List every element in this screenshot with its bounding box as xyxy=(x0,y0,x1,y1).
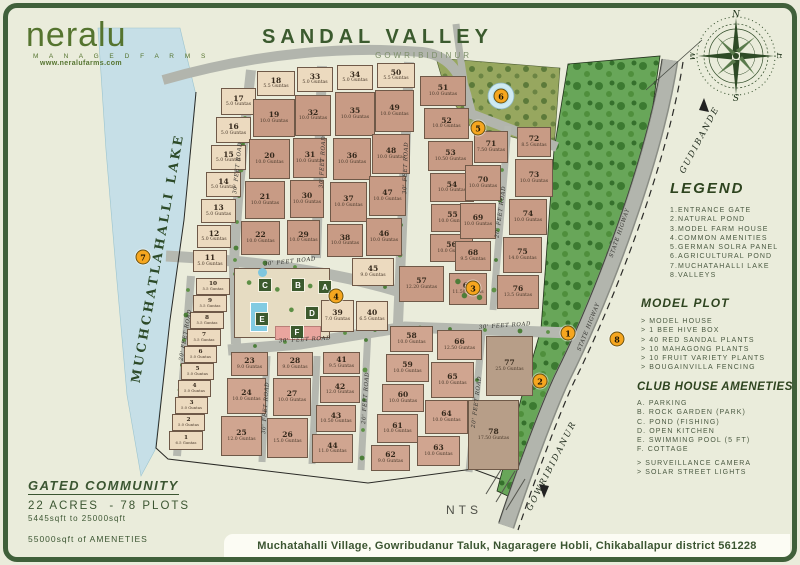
plot-number: 68 xyxy=(468,249,478,257)
plot-size: 10.0 Guntas xyxy=(514,218,542,224)
brand-name: neralu xyxy=(26,18,210,52)
plot-77: 7725.0 Guntas xyxy=(486,336,533,396)
plot-62: 629.0 Guntas xyxy=(371,445,410,471)
plot-size: 5.0 Guntas xyxy=(190,355,211,360)
plot-size: 10.0 Guntas xyxy=(432,124,460,130)
plot-size: 10.0 Guntas xyxy=(255,160,283,166)
project-title: SANDAL VALLEY GOWRIBIDINUR xyxy=(262,26,472,60)
plot-size: 7.0 Guntas xyxy=(325,317,350,323)
plot-size: 5.5 Guntas xyxy=(194,338,215,343)
plot-37: 3710.0 Guntas xyxy=(330,182,367,222)
plot-number: 27 xyxy=(287,390,297,398)
panel-item: > MODEL HOUSE xyxy=(641,317,765,326)
plot-size: 17.50 Guntas xyxy=(478,436,509,442)
plot-number: 74 xyxy=(523,210,533,218)
plot-42: 4212.0 Guntas xyxy=(320,376,360,403)
plot-28: 289.0 Guntas xyxy=(277,352,313,376)
plot-39: 397.0 Guntas xyxy=(321,300,354,332)
plot-size: 6.5 Guntas xyxy=(176,441,197,446)
plot-41: 419.5 Guntas xyxy=(323,352,360,374)
plot-33: 335.0 Guntas xyxy=(297,67,333,92)
plot-number: 70 xyxy=(478,176,488,184)
plot-size: 9.5 Guntas xyxy=(460,257,485,263)
plot-size: 10.0 Guntas xyxy=(432,418,460,424)
plot-24: 2410.0 Guntas xyxy=(227,378,266,414)
plot-number: 71 xyxy=(486,140,496,148)
plot-number: 51 xyxy=(438,84,448,92)
panel-item: 3.MODEL FARM HOUSE xyxy=(670,225,778,234)
plot-29: 2910.0 Guntas xyxy=(287,220,320,255)
plot-26: 2615.0 Guntas xyxy=(267,418,308,458)
plot-number: 69 xyxy=(473,214,483,222)
plot-number: 24 xyxy=(241,389,251,397)
plot-number: 57 xyxy=(416,277,426,285)
legend-marker-5: 5 xyxy=(471,121,486,136)
plot-18: 185.5 Guntas xyxy=(257,71,295,96)
plot-size: 5.0 Guntas xyxy=(206,212,231,218)
plot-number: 26 xyxy=(282,431,292,439)
project-location: GOWRIBIDINUR xyxy=(262,51,472,60)
legend-heading: LEGEND xyxy=(670,180,778,197)
panel-item: 7.MUCHATAHALLI LAKE xyxy=(670,262,778,271)
legend-marker-6: 6 xyxy=(494,89,509,104)
plot-32: 3210.0 Guntas xyxy=(295,95,331,136)
plot-7: 75.5 Guntas xyxy=(187,329,221,346)
plot-size: 10.0 Guntas xyxy=(341,115,369,121)
plot-size: 5.0 Guntas xyxy=(226,102,251,108)
plot-65: 6510.0 Guntas xyxy=(431,362,474,398)
panel-item: 1.ENTRANCE GATE xyxy=(670,206,778,215)
plot-size: 10.0 Guntas xyxy=(393,369,421,375)
plot-57: 5712.20 Guntas xyxy=(399,266,444,302)
compass-w: W xyxy=(690,51,698,61)
plot-number: 13 xyxy=(213,204,223,212)
plot-size: 12.0 Guntas xyxy=(326,390,354,396)
plot-75: 7514.0 Guntas xyxy=(503,237,542,273)
plot-52: 5210.0 Guntas xyxy=(424,108,469,139)
plot-size: 5.5 Guntas xyxy=(203,287,224,292)
plot-number: 22 xyxy=(255,231,265,239)
plot-size: 8.5 Guntas xyxy=(521,143,546,149)
plot-size: 5.0 Guntas xyxy=(184,389,205,394)
model-plot-heading: MODEL PLOT xyxy=(641,296,765,310)
plot-number: 62 xyxy=(385,451,395,459)
plot-49: 4910.0 Guntas xyxy=(375,90,414,132)
plot-59: 5910.0 Guntas xyxy=(386,354,429,382)
plot-number: 19 xyxy=(269,111,279,119)
plot-number: 73 xyxy=(529,171,539,179)
legend-marker-7: 7 xyxy=(136,250,151,265)
plot-size: 14.0 Guntas xyxy=(508,256,536,262)
plot-58: 5810.0 Guntas xyxy=(390,326,433,352)
plot-number: 30 xyxy=(302,192,312,200)
plot-size: 10.0 Guntas xyxy=(232,397,260,403)
panel-item: > 40 RED SANDAL PLANTS xyxy=(641,336,765,345)
plot-68: 689.5 Guntas xyxy=(455,241,491,271)
plot-size: 6.5 Guntas xyxy=(359,317,384,323)
plot-size: 10.0 Guntas xyxy=(289,238,317,244)
plot-size: 10.0 Guntas xyxy=(334,203,362,209)
model-plot-panel: MODEL PLOT > MODEL HOUSE> 1 BEE HIVE BOX… xyxy=(641,296,765,373)
plot-51: 5110.0 Guntas xyxy=(420,76,466,106)
legend-marker-4: 4 xyxy=(329,289,344,304)
panel-item: 8.VALLEYS xyxy=(670,271,778,280)
plot-8: 85.5 Guntas xyxy=(190,312,224,329)
plot-size: 15.0 Guntas xyxy=(273,439,301,445)
plot-size: 10.0 Guntas xyxy=(370,238,398,244)
plot-number: 35 xyxy=(350,107,360,115)
plot-number: 41 xyxy=(336,356,346,364)
address-text: Muchatahalli Village, Gowribudanur Taluk… xyxy=(257,540,756,552)
plot-size: 10.50 Guntas xyxy=(435,157,466,163)
plot-size: 10.0 Guntas xyxy=(424,452,452,458)
panel-item: A. PARKING xyxy=(637,399,793,408)
plot-9: 95.5 Guntas xyxy=(193,295,227,312)
plot-size: 5.0 Guntas xyxy=(342,78,367,84)
plot-22: 2210.0 Guntas xyxy=(241,221,280,255)
plot-size: 9.0 Guntas xyxy=(237,365,262,371)
plot-number: 49 xyxy=(389,104,399,112)
plot-72: 728.5 Guntas xyxy=(517,127,551,157)
plot-size: 5.0 Guntas xyxy=(187,372,208,377)
plot-size: 5.5 Guntas xyxy=(200,304,221,309)
plot-size: 5.5 Guntas xyxy=(197,321,218,326)
plot-number: 36 xyxy=(347,152,357,160)
plot-size: 10.0 Guntas xyxy=(397,340,425,346)
plot-size: 10.0 Guntas xyxy=(377,155,405,161)
panel-item: > BOUGAINVILLA FENCING xyxy=(641,363,765,372)
plot-size: 9.5 Guntas xyxy=(329,364,354,370)
plot-13: 135.0 Guntas xyxy=(201,199,236,223)
panel-item: 5.GERMAN SOLRA PANEL xyxy=(670,243,778,252)
plot-number: 77 xyxy=(504,359,514,367)
plot-size: 10.0 Guntas xyxy=(469,184,497,190)
plot-size: 10.0 Guntas xyxy=(520,179,548,185)
plot-16: 165.0 Guntas xyxy=(216,117,251,143)
plot-73: 7310.0 Guntas xyxy=(515,159,553,197)
plot-11: 115.0 Guntas xyxy=(193,250,227,272)
gated-community-heading: GATED COMMUNITY xyxy=(28,478,179,495)
plot-64: 6410.0 Guntas xyxy=(425,400,468,434)
plot-66: 6612.50 Guntas xyxy=(437,330,482,360)
panel-item: > 10 FRUIT VARIETY PLANTS xyxy=(641,354,765,363)
plot-2: 25.0 Guntas xyxy=(172,414,205,431)
plot-size: 10.0 Guntas xyxy=(293,200,321,206)
plot-number: 72 xyxy=(529,135,539,143)
plot-number: 21 xyxy=(260,193,270,201)
plot-5: 55.0 Guntas xyxy=(181,363,214,380)
panel-item: E. SWIMMING POOL (5 FT) xyxy=(637,436,793,445)
legend-items: 1.ENTRANCE GATE2.NATURAL POND3.MODEL FAR… xyxy=(670,206,778,280)
plot-size: 9.0 Guntas xyxy=(378,459,403,465)
compass-s: S xyxy=(733,94,739,102)
club-house-panel: CLUB HOUSE AMENETIES A. PARKINGB. ROCK G… xyxy=(637,381,793,477)
plot-size: 10.0 Guntas xyxy=(373,197,401,203)
plot-number: 55 xyxy=(447,211,457,219)
summary-block: GATED COMMUNITY 22 ACRES - 78 PLOTS 5445… xyxy=(28,477,190,544)
plot-size: 11.0 Guntas xyxy=(318,449,346,455)
club-house-items: A. PARKINGB. ROCK GARDEN (PARK)C. POND (… xyxy=(637,399,793,455)
amenities-sqft-line: 55000sqft of AMENETIES xyxy=(28,534,190,544)
plot-size: 5.0 Guntas xyxy=(221,131,246,137)
plot-number: 28 xyxy=(290,357,300,365)
sqft-range-line: 5445sqft to 25000sqft xyxy=(28,514,190,523)
plot-46: 4610.0 Guntas xyxy=(366,218,402,256)
panel-item: > SURVEILLANCE CAMERA xyxy=(637,459,793,468)
plot-size: 10.0 Guntas xyxy=(331,241,359,247)
plot-size: 10.0 Guntas xyxy=(246,239,274,245)
plot-number: 16 xyxy=(228,123,238,131)
plot-size: 5.0 Guntas xyxy=(181,406,202,411)
plot-6: 65.0 Guntas xyxy=(184,346,217,363)
plot-23: 239.0 Guntas xyxy=(231,352,268,376)
plot-3: 35.0 Guntas xyxy=(175,397,208,414)
legend-marker-3: 3 xyxy=(466,281,481,296)
plot-size: 5.0 Guntas xyxy=(302,80,327,86)
plot-number: 48 xyxy=(386,147,396,155)
fishing-pond xyxy=(258,268,267,277)
plot-number: 39 xyxy=(332,309,342,317)
plot-17: 175.0 Guntas xyxy=(221,88,256,115)
plot-number: 76 xyxy=(513,285,523,293)
plot-number: 45 xyxy=(368,265,378,273)
plot-size: 9.0 Guntas xyxy=(360,273,385,279)
plot-size: 5.0 Guntas xyxy=(178,423,199,428)
plot-61: 6110.0 Guntas xyxy=(377,414,418,443)
plot-number: 63 xyxy=(433,444,443,452)
amenity-letter-D: D xyxy=(305,306,319,320)
plot-number: 23 xyxy=(244,357,254,365)
plot-size: 10.0 Guntas xyxy=(438,188,466,194)
plot-size: 10.0 Guntas xyxy=(464,222,492,228)
panel-item: > 1 BEE HIVE BOX xyxy=(641,326,765,335)
brand-logo: neralu M A N A G E D F A R M S www.neral… xyxy=(26,18,210,67)
plot-size: 10.0 Guntas xyxy=(260,119,288,125)
plot-size: 5.5 Guntas xyxy=(263,84,288,90)
plot-size: 5.5 Guntas xyxy=(383,76,408,82)
panel-item: > 10 MAHAGONG PLANTS xyxy=(641,345,765,354)
plot-number: 78 xyxy=(488,428,498,436)
acres-plots-line: 22 ACRES - 78 PLOTS xyxy=(28,500,190,512)
amenity-letter-E: E xyxy=(255,312,269,326)
plot-71: 717.50 Guntas xyxy=(474,131,508,163)
plot-number: 46 xyxy=(379,230,389,238)
plot-34: 345.0 Guntas xyxy=(337,65,373,90)
plot-number: 20 xyxy=(264,152,274,160)
plot-number: 59 xyxy=(402,361,412,369)
plot-69: 6910.0 Guntas xyxy=(460,203,496,239)
plot-size: 13.5 Guntas xyxy=(504,293,532,299)
plot-number: 31 xyxy=(305,151,315,159)
plot-number: 37 xyxy=(343,195,353,203)
plot-size: 10.0 Guntas xyxy=(278,398,306,404)
plot-36: 3610.0 Guntas xyxy=(333,138,371,180)
plot-47: 4710.0 Guntas xyxy=(369,176,406,216)
plot-size: 10.0 Guntas xyxy=(429,92,457,98)
panel-item: F. COTTAGE xyxy=(637,445,793,454)
plot-4: 45.0 Guntas xyxy=(178,380,211,397)
address-bar: Muchatahalli Village, Gowribudanur Taluk… xyxy=(224,534,790,557)
plot-size: 12.20 Guntas xyxy=(406,285,437,291)
plot-size: 10.50 Guntas xyxy=(320,419,351,425)
plot-size: 10.0 Guntas xyxy=(299,116,327,122)
plot-size: 9.0 Guntas xyxy=(282,365,307,371)
plot-number: 75 xyxy=(517,248,527,256)
plot-50: 505.5 Guntas xyxy=(377,63,415,88)
plot-25: 2512.0 Guntas xyxy=(221,416,262,456)
plot-size: 10.0 Guntas xyxy=(338,160,366,166)
plot-44: 4411.0 Guntas xyxy=(312,434,353,463)
plot-27: 2710.0 Guntas xyxy=(273,378,311,416)
plot-size: 25.0 Guntas xyxy=(495,367,523,373)
plot-number: 25 xyxy=(236,429,246,437)
plot-19: 1910.0 Guntas xyxy=(253,99,295,137)
plot-74: 7410.0 Guntas xyxy=(509,199,547,235)
club-house-heading: CLUB HOUSE AMENETIES xyxy=(637,381,793,393)
legend-panel: LEGEND 1.ENTRANCE GATE2.NATURAL POND3.MO… xyxy=(670,180,778,280)
plot-1: 16.5 Guntas xyxy=(169,431,203,450)
panel-item: 4.COMMON AMENITIES xyxy=(670,234,778,243)
panel-item: 2.NATURAL POND xyxy=(670,215,778,224)
plot-number: 53 xyxy=(445,149,455,157)
plot-number: 47 xyxy=(382,189,392,197)
plot-number: 66 xyxy=(454,338,464,346)
nts-label: NTS xyxy=(446,503,482,517)
panel-item: 6.AGRICULTURAL POND xyxy=(670,252,778,261)
plot-number: 58 xyxy=(406,332,416,340)
plot-76: 7613.5 Guntas xyxy=(497,275,539,309)
plot-20: 2010.0 Guntas xyxy=(249,139,290,179)
model-plot-items: > MODEL HOUSE> 1 BEE HIVE BOX> 40 RED SA… xyxy=(641,317,765,373)
plot-size: 10.0 Guntas xyxy=(251,201,279,207)
plot-size: 12.50 Guntas xyxy=(444,346,475,352)
club-house-extras: > SURVEILLANCE CAMERA> SOLAR STREET LIGH… xyxy=(637,459,793,478)
plot-size: 10.0 Guntas xyxy=(383,429,411,435)
plot-size: 10.0 Guntas xyxy=(380,112,408,118)
plot-45: 459.0 Guntas xyxy=(352,258,394,286)
plot-10: 105.5 Guntas xyxy=(196,278,230,295)
plot-size: 10.0 Guntas xyxy=(438,381,466,387)
plot-number: 60 xyxy=(398,391,408,399)
compass-n: N xyxy=(731,10,741,20)
compass-e: E xyxy=(774,52,782,60)
plot-12: 125.0 Guntas xyxy=(197,225,231,248)
plot-number: 40 xyxy=(367,309,377,317)
panel-item: > SOLAR STREET LIGHTS xyxy=(637,468,793,477)
plot-63: 6310.0 Guntas xyxy=(417,436,460,466)
legend-marker-1: 1 xyxy=(561,326,576,341)
amenity-letter-C: C xyxy=(258,278,272,292)
plot-size: 12.0 Guntas xyxy=(227,437,255,443)
plot-21: 2110.0 Guntas xyxy=(245,181,285,219)
plot-60: 6010.0 Guntas xyxy=(382,384,424,412)
brand-website: www.neralufarms.com xyxy=(40,60,210,67)
plot-number: 11 xyxy=(205,254,215,262)
plot-size: 10.0 Guntas xyxy=(389,399,417,405)
plot-size: 5.0 Guntas xyxy=(201,237,226,243)
plot-size: 7.50 Guntas xyxy=(477,148,505,154)
legend-marker-2: 2 xyxy=(533,374,548,389)
compass-rose: N S E W xyxy=(690,10,782,102)
legend-marker-8: 8 xyxy=(610,332,625,347)
plot-size: 5.0 Guntas xyxy=(197,262,222,268)
plot-number: 65 xyxy=(447,373,457,381)
plot-70: 7010.0 Guntas xyxy=(465,165,501,201)
panel-item: B. ROCK GARDEN (PARK) xyxy=(637,408,793,417)
brand-tagline: M A N A G E D F A R M S xyxy=(33,53,210,60)
plot-43: 4310.50 Guntas xyxy=(316,405,356,432)
plot-40: 406.5 Guntas xyxy=(356,301,388,331)
panel-item: C. POND (FISHING) xyxy=(637,418,793,427)
plot-35: 3510.0 Guntas xyxy=(335,92,375,136)
plot-number: 64 xyxy=(441,410,451,418)
project-name: SANDAL VALLEY xyxy=(262,26,472,49)
layout-poster: neralu M A N A G E D F A R M S www.neral… xyxy=(0,0,800,565)
plot-38: 3810.0 Guntas xyxy=(327,224,363,257)
panel-item: D. OPEN KITCHEN xyxy=(637,427,793,436)
amenity-letter-B: B xyxy=(291,278,305,292)
